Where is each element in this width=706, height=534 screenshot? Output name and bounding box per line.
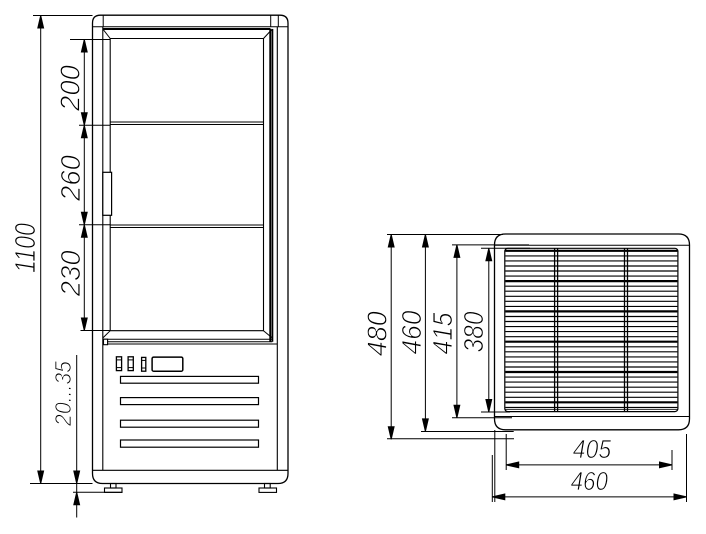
svg-text:230: 230: [55, 250, 86, 297]
svg-text:480: 480: [362, 311, 393, 356]
svg-text:1100: 1100: [10, 223, 42, 273]
svg-text:380: 380: [458, 311, 489, 352]
svg-text:20...35: 20...35: [50, 361, 76, 427]
svg-text:260: 260: [55, 155, 86, 202]
svg-text:415: 415: [427, 312, 458, 354]
svg-text:460: 460: [571, 466, 609, 496]
svg-text:460: 460: [396, 310, 427, 354]
svg-text:405: 405: [573, 434, 612, 464]
svg-text:200: 200: [55, 65, 86, 112]
